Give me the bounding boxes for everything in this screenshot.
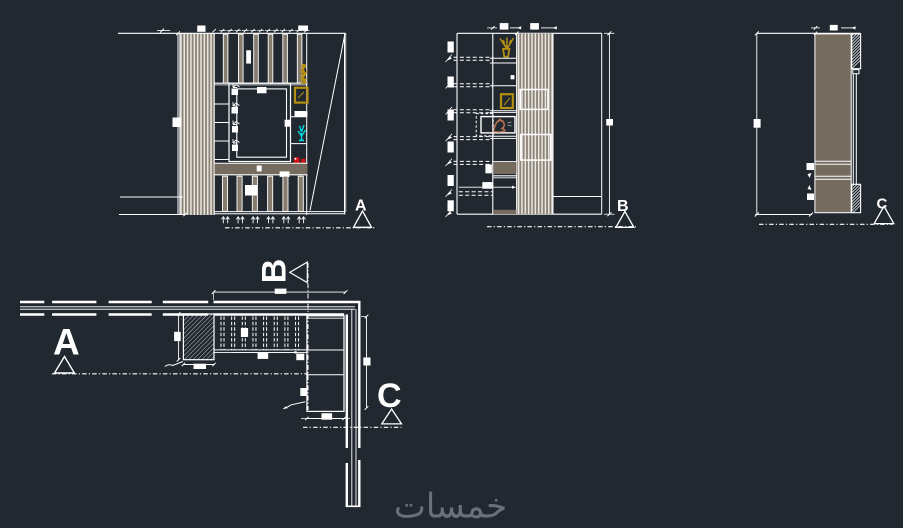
svg-text:A: A [355,198,367,215]
svg-text:C: C [377,377,402,415]
svg-text:A: A [53,322,80,363]
svg-text:B: B [255,259,293,284]
svg-text:خمسات: خمسات [394,488,507,526]
svg-text:B: B [617,198,629,215]
